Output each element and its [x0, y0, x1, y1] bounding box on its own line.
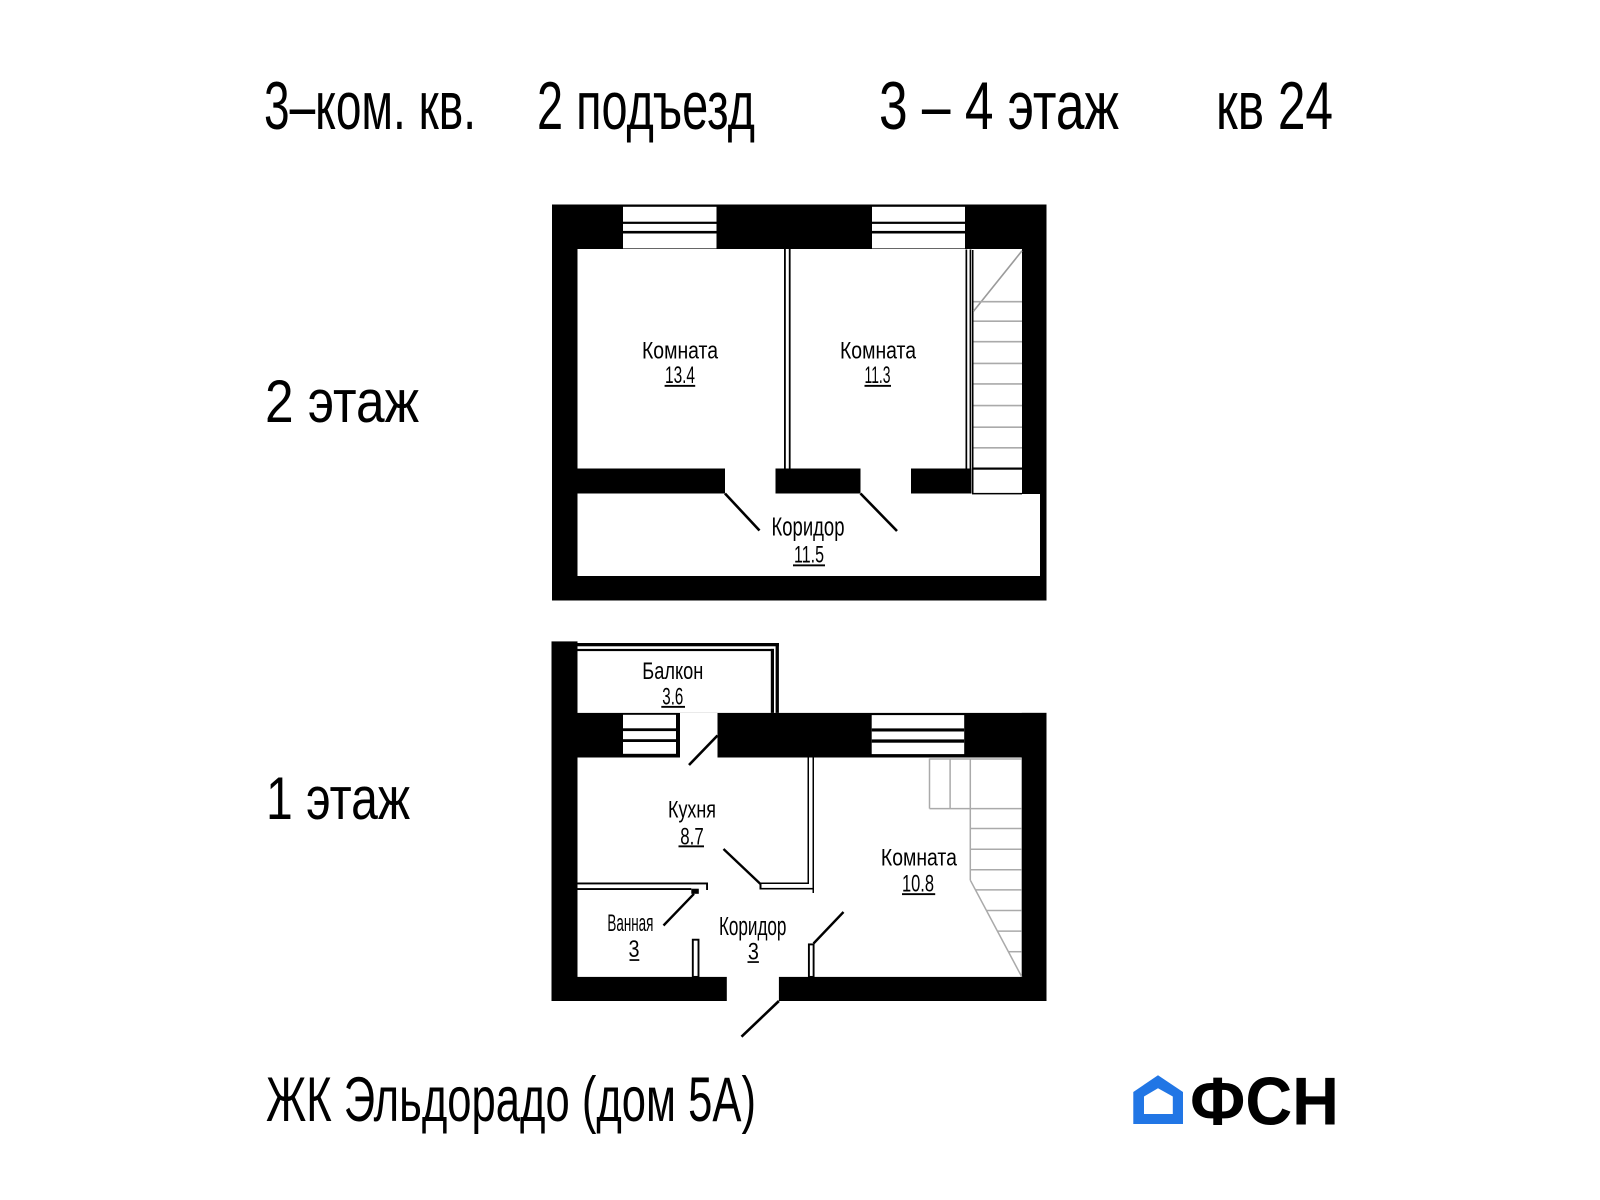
svg-text:11.3: 11.3	[865, 362, 891, 389]
svg-text:2 подъезд: 2 подъезд	[537, 68, 755, 144]
svg-text:Комната: Комната	[642, 338, 719, 365]
svg-text:13.4: 13.4	[665, 362, 695, 389]
svg-text:Кухня: Кухня	[668, 797, 716, 824]
svg-text:2 этаж: 2 этаж	[265, 368, 419, 435]
svg-text:3–ком. кв.: 3–ком. кв.	[264, 68, 476, 144]
svg-text:3: 3	[629, 936, 640, 963]
svg-text:Комната: Комната	[881, 845, 958, 872]
svg-text:ФСН: ФСН	[1190, 1064, 1339, 1140]
svg-text:Комната: Комната	[840, 338, 917, 365]
svg-text:1 этаж: 1 этаж	[266, 765, 410, 832]
svg-text:Балкон: Балкон	[642, 658, 703, 685]
svg-text:3 – 4 этаж: 3 – 4 этаж	[879, 68, 1119, 144]
svg-text:ЖК Эльдорадо (дом 5А): ЖК Эльдорадо (дом 5А)	[266, 1065, 756, 1135]
svg-text:кв 24: кв 24	[1216, 68, 1333, 144]
svg-text:Коридор: Коридор	[772, 514, 845, 542]
svg-text:Ванная: Ванная	[607, 910, 653, 937]
svg-text:Коридор: Коридор	[719, 913, 787, 941]
